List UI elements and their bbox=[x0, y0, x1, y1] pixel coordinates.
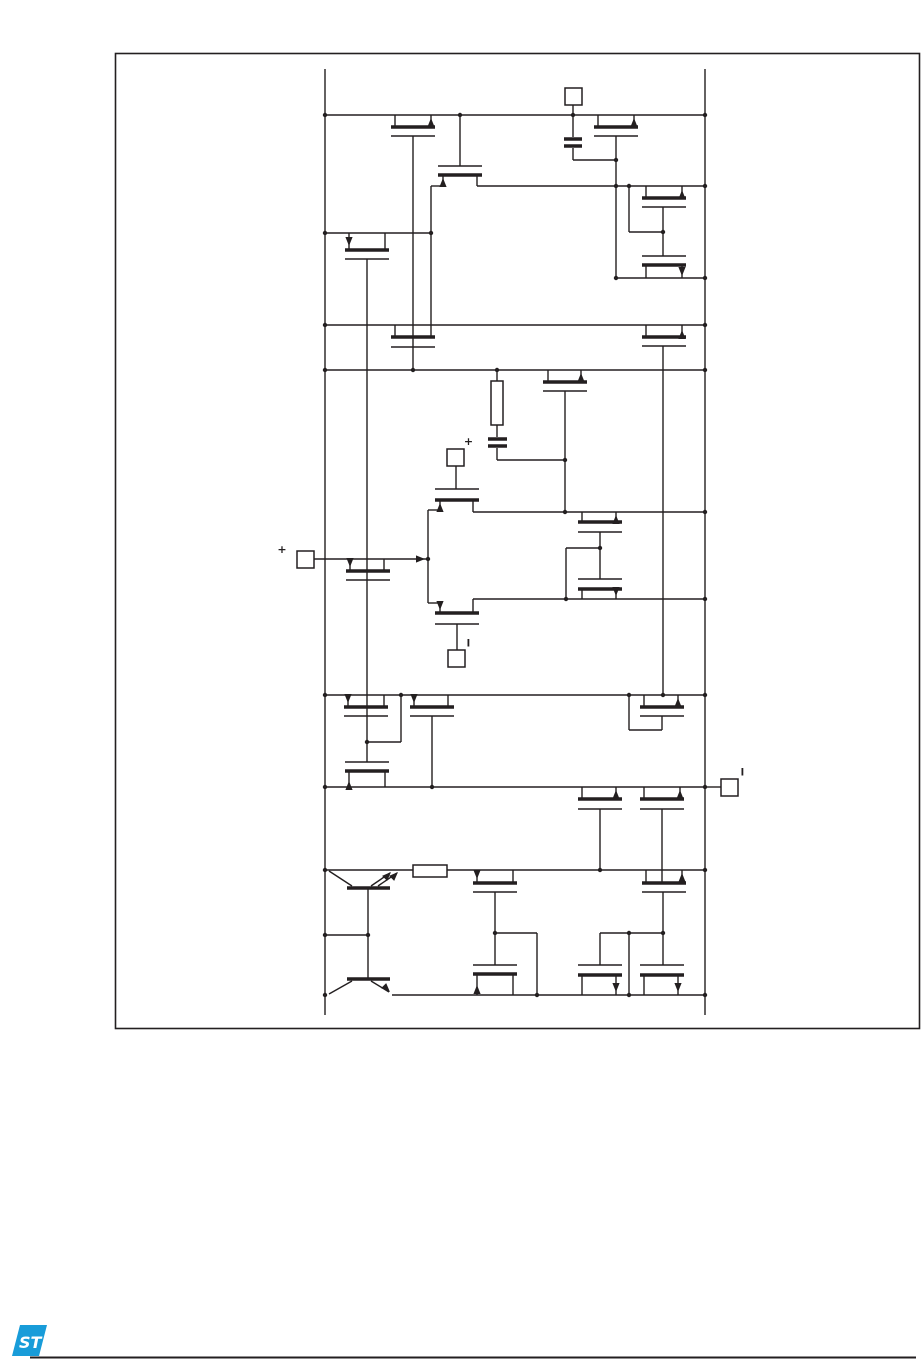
wire-layer bbox=[313, 69, 721, 1015]
output-terminal-pad bbox=[721, 779, 738, 796]
left-input-terminal-pad bbox=[297, 551, 314, 568]
center-input-plus-label: + bbox=[464, 435, 473, 448]
lower-input-terminal-pad bbox=[448, 650, 465, 667]
terminal-layer bbox=[297, 88, 743, 796]
st-logo: ST bbox=[12, 1325, 47, 1356]
center-input-terminal-pad bbox=[447, 449, 464, 466]
resistor-vertical bbox=[491, 381, 503, 425]
st-logo-text: ST bbox=[19, 1333, 43, 1352]
left-input-plus-label: + bbox=[277, 543, 286, 556]
schematic-canvas: + + ST bbox=[0, 0, 922, 1361]
lower-input-tick-label bbox=[468, 639, 470, 647]
top-terminal-pad bbox=[565, 88, 582, 105]
resistor-horizontal bbox=[413, 865, 447, 877]
datasheet-page: + + ST bbox=[0, 0, 922, 1361]
output-tick-label bbox=[742, 768, 744, 776]
figure-border bbox=[116, 54, 920, 1029]
